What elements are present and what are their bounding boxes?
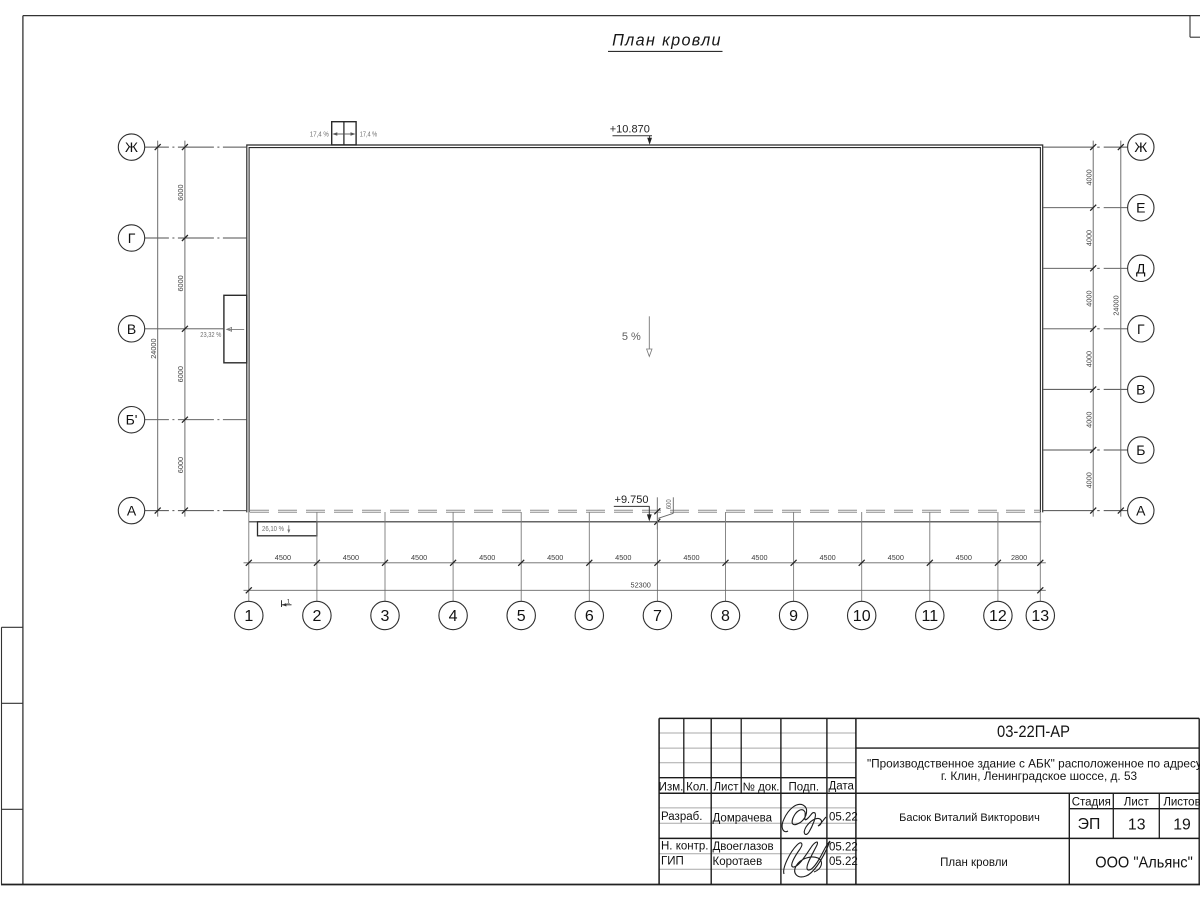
svg-text:В: В xyxy=(1136,381,1145,397)
svg-text:9: 9 xyxy=(789,608,798,625)
svg-text:4: 4 xyxy=(449,608,458,625)
svg-text:Домрачева: Домрачева xyxy=(713,812,773,824)
svg-text:Подп.: Подп. xyxy=(789,781,820,793)
svg-text:52300: 52300 xyxy=(631,580,651,589)
svg-text:№ док.: № док. xyxy=(743,781,780,793)
svg-text:8: 8 xyxy=(721,608,730,625)
svg-text:4500: 4500 xyxy=(615,553,631,562)
svg-text:1: 1 xyxy=(287,598,291,605)
svg-text:2: 2 xyxy=(312,608,321,625)
svg-text:В: В xyxy=(127,321,136,337)
svg-text:4500: 4500 xyxy=(819,553,835,562)
svg-text:4500: 4500 xyxy=(888,553,904,562)
svg-text:ГИП: ГИП xyxy=(661,855,684,867)
svg-text:Листов: Листов xyxy=(1163,796,1200,808)
svg-text:План кровли: План кровли xyxy=(612,32,722,50)
svg-text:23,32 %: 23,32 % xyxy=(200,330,221,339)
svg-text:Коротаев: Коротаев xyxy=(713,856,763,868)
svg-text:7: 7 xyxy=(653,608,662,625)
svg-text:24000: 24000 xyxy=(1111,295,1120,315)
svg-text:Дата: Дата xyxy=(828,780,854,792)
svg-text:12: 12 xyxy=(989,608,1007,625)
svg-text:6000: 6000 xyxy=(176,275,185,291)
svg-text:г. Клин, Ленинградское шоссе,: г. Клин, Ленинградское шоссе, д. 53 xyxy=(941,769,1138,783)
svg-text:4500: 4500 xyxy=(479,553,495,562)
svg-text:Разраб.: Разраб. xyxy=(661,811,702,823)
svg-text:Лист: Лист xyxy=(714,781,740,793)
svg-text:6: 6 xyxy=(585,608,594,625)
svg-text:6000: 6000 xyxy=(176,366,185,382)
svg-text:5: 5 xyxy=(517,608,526,625)
svg-text:Ж: Ж xyxy=(125,139,138,155)
svg-text:Двоеглазов: Двоеглазов xyxy=(713,841,774,853)
svg-text:13: 13 xyxy=(1128,816,1146,833)
svg-text:17,4 %: 17,4 % xyxy=(360,130,378,139)
svg-text:Изм.: Изм. xyxy=(659,781,684,793)
svg-text:4500: 4500 xyxy=(343,553,359,562)
svg-text:4500: 4500 xyxy=(547,553,563,562)
svg-text:4000: 4000 xyxy=(1084,351,1093,367)
svg-text:Г: Г xyxy=(1137,321,1145,337)
svg-text:4000: 4000 xyxy=(1084,472,1093,488)
svg-text:24000: 24000 xyxy=(149,338,158,358)
svg-text:ЭП: ЭП xyxy=(1078,816,1101,833)
svg-text:Д: Д xyxy=(1136,260,1146,276)
svg-text:Басюк Виталий Викторович: Басюк Виталий Викторович xyxy=(899,812,1040,824)
svg-text:11: 11 xyxy=(921,608,938,625)
svg-text:5 %: 5 % xyxy=(622,331,641,343)
svg-text:А: А xyxy=(1136,503,1146,519)
svg-text:3: 3 xyxy=(381,608,390,625)
svg-text:Н. контр.: Н. контр. xyxy=(661,841,708,853)
svg-text:13: 13 xyxy=(1031,608,1049,625)
svg-text:Стадия: Стадия xyxy=(1072,796,1111,808)
svg-text:Лист: Лист xyxy=(1124,796,1150,808)
svg-text:+9.750: +9.750 xyxy=(615,494,649,506)
svg-text:6000: 6000 xyxy=(176,457,185,473)
svg-text:600: 600 xyxy=(666,499,673,509)
svg-text:03-22П-АР: 03-22П-АР xyxy=(997,723,1070,741)
svg-text:19: 19 xyxy=(1173,816,1191,833)
svg-text:4500: 4500 xyxy=(751,553,767,562)
svg-text:План кровли: План кровли xyxy=(940,857,1008,869)
svg-text:4000: 4000 xyxy=(1084,412,1093,428)
svg-text:4500: 4500 xyxy=(411,553,427,562)
svg-text:2800: 2800 xyxy=(1011,553,1027,562)
svg-text:Е: Е xyxy=(1136,200,1145,216)
svg-text:ООО "Альянс": ООО "Альянс" xyxy=(1095,855,1193,872)
svg-text:4000: 4000 xyxy=(1084,230,1093,246)
svg-text:4000: 4000 xyxy=(1084,169,1093,185)
svg-text:+10.870: +10.870 xyxy=(610,124,650,136)
svg-text:05.22: 05.22 xyxy=(829,812,858,824)
svg-text:4000: 4000 xyxy=(1084,290,1093,306)
svg-text:Кол.: Кол. xyxy=(686,781,709,793)
svg-text:Г: Г xyxy=(128,230,136,246)
svg-text:"Производственное здание с АБК: "Производственное здание с АБК" располож… xyxy=(867,756,1200,770)
svg-text:Б: Б xyxy=(1136,442,1145,458)
svg-text:05.22: 05.22 xyxy=(829,856,858,868)
svg-text:05.22: 05.22 xyxy=(829,841,858,853)
svg-text:Б': Б' xyxy=(126,412,138,428)
svg-text:4500: 4500 xyxy=(275,553,291,562)
svg-text:6000: 6000 xyxy=(176,184,185,200)
svg-text:26,10 %: 26,10 % xyxy=(262,526,284,533)
svg-text:А: А xyxy=(127,503,137,519)
svg-text:Ж: Ж xyxy=(1134,139,1147,155)
svg-text:17,4 %: 17,4 % xyxy=(310,130,329,139)
svg-text:1: 1 xyxy=(244,608,253,625)
svg-text:4500: 4500 xyxy=(956,553,972,562)
svg-text:10: 10 xyxy=(853,608,871,625)
svg-text:4500: 4500 xyxy=(683,553,699,562)
